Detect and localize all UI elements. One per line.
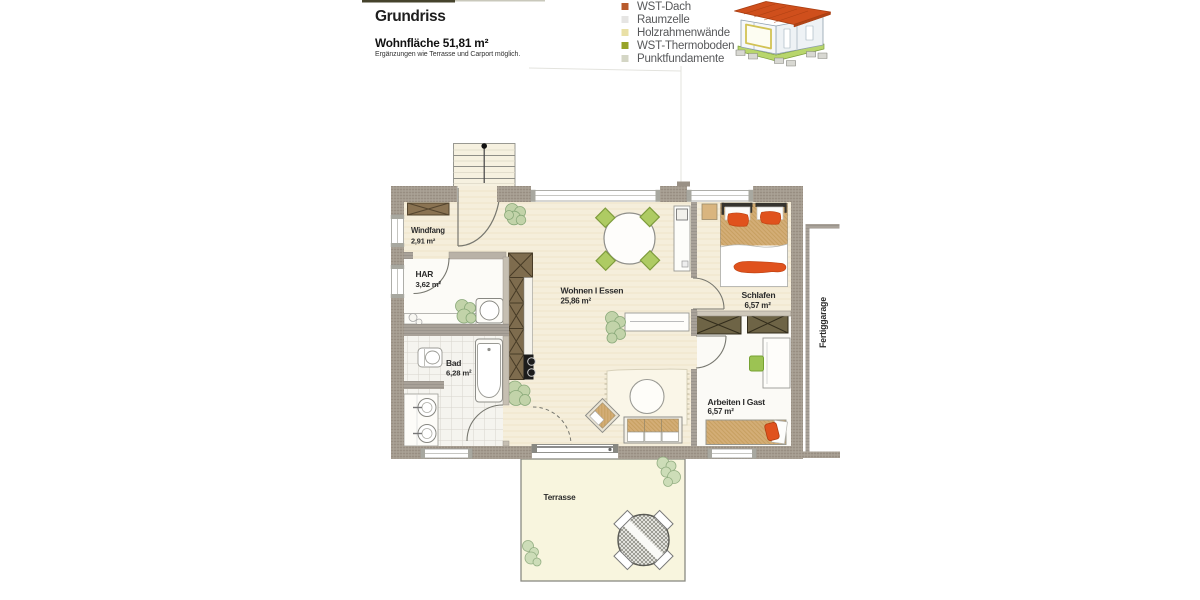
svg-text:WST-Dach: WST-Dach <box>637 1 691 13</box>
svg-text:Arbeiten I Gast: Arbeiten I Gast <box>708 397 766 407</box>
svg-text:Fertiggarage: Fertiggarage <box>818 297 828 348</box>
svg-text:25,86 m²: 25,86 m² <box>561 297 592 306</box>
svg-text:Wohnfläche 51,81 m²: Wohnfläche 51,81 m² <box>375 36 489 50</box>
svg-text:6,28 m²: 6,28 m² <box>446 369 472 378</box>
svg-text:Ergänzungen wie Terrasse und C: Ergänzungen wie Terrasse und Carport mög… <box>375 51 520 58</box>
svg-text:WST-Thermoboden: WST-Thermoboden <box>637 40 734 52</box>
svg-text:Terrasse: Terrasse <box>544 493 577 502</box>
svg-text:Punktfundamente: Punktfundamente <box>637 53 724 65</box>
svg-text:Windfang: Windfang <box>411 226 445 235</box>
svg-text:Wohnen I Essen: Wohnen I Essen <box>561 286 624 296</box>
svg-text:Raumzelle: Raumzelle <box>637 14 690 26</box>
svg-text:Grundriss: Grundriss <box>375 8 445 25</box>
svg-text:6,57 m²: 6,57 m² <box>708 407 735 416</box>
svg-text:Schlafen: Schlafen <box>742 290 776 300</box>
svg-text:Holzrahmenwände: Holzrahmenwände <box>637 27 730 39</box>
svg-text:HAR: HAR <box>416 269 434 279</box>
svg-text:6,57 m²: 6,57 m² <box>745 301 772 310</box>
svg-text:Bad: Bad <box>446 358 461 368</box>
svg-text:2,91 m²: 2,91 m² <box>411 237 436 246</box>
svg-text:3,62 m²: 3,62 m² <box>416 280 442 289</box>
